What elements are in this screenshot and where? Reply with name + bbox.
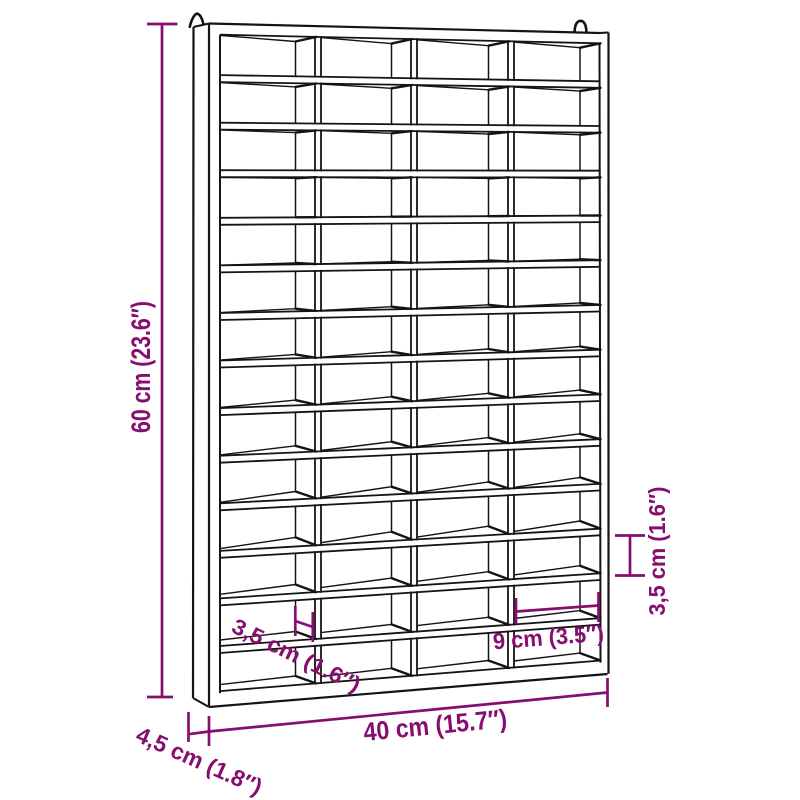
svg-text:3,5 cm (1.6″): 3,5 cm (1.6″): [644, 487, 670, 616]
svg-text:60 cm (23.6″): 60 cm (23.6″): [126, 301, 156, 433]
